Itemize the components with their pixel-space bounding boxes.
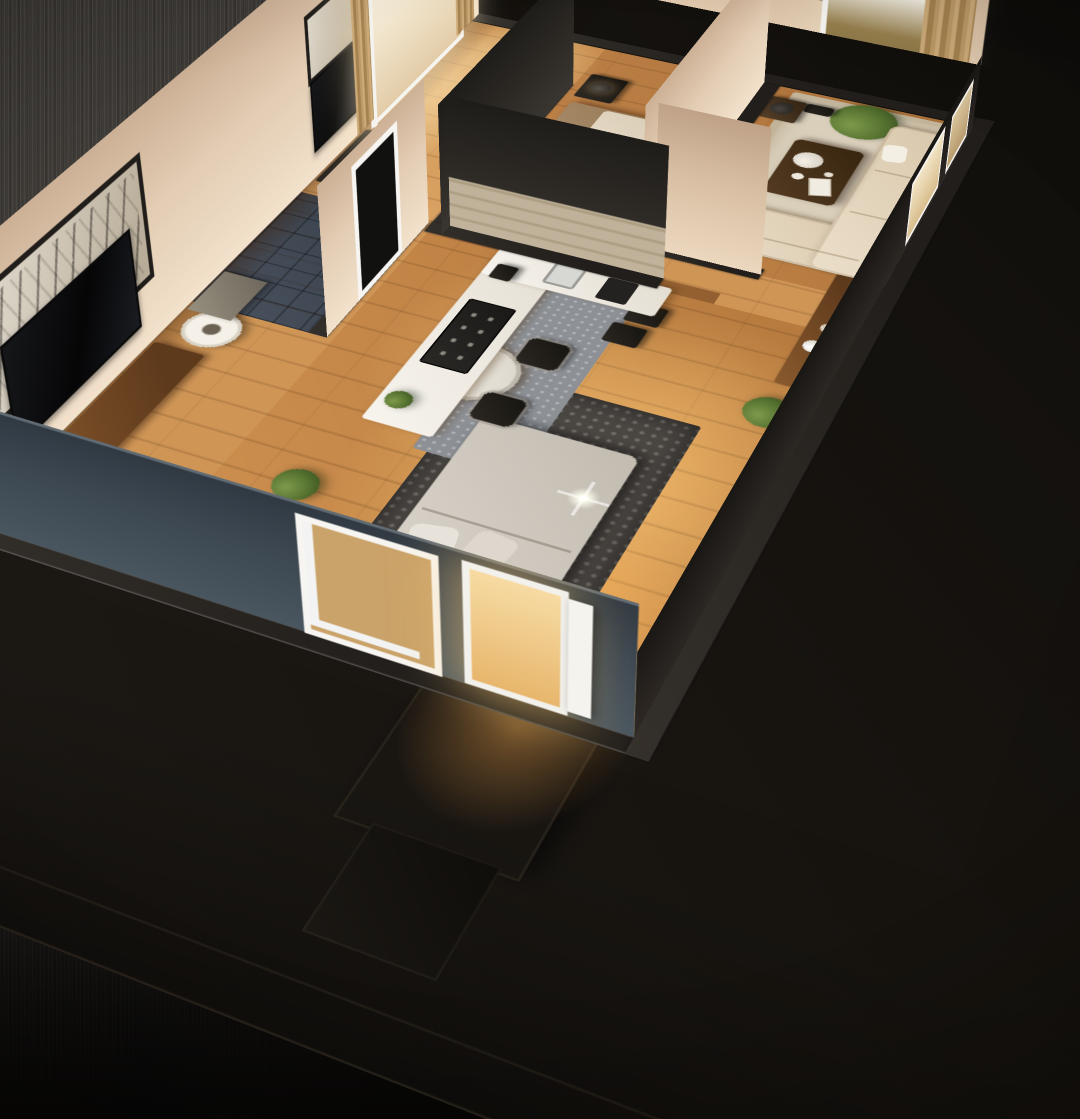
magazines [808,178,831,197]
window-mullion [487,0,495,11]
floor-plan-render [0,0,1080,1119]
sofa-pillow-2 [881,144,909,164]
window-crossbar-v [303,521,320,620]
wall-lounge-return [653,103,772,276]
entry-door-leaf [568,599,594,719]
